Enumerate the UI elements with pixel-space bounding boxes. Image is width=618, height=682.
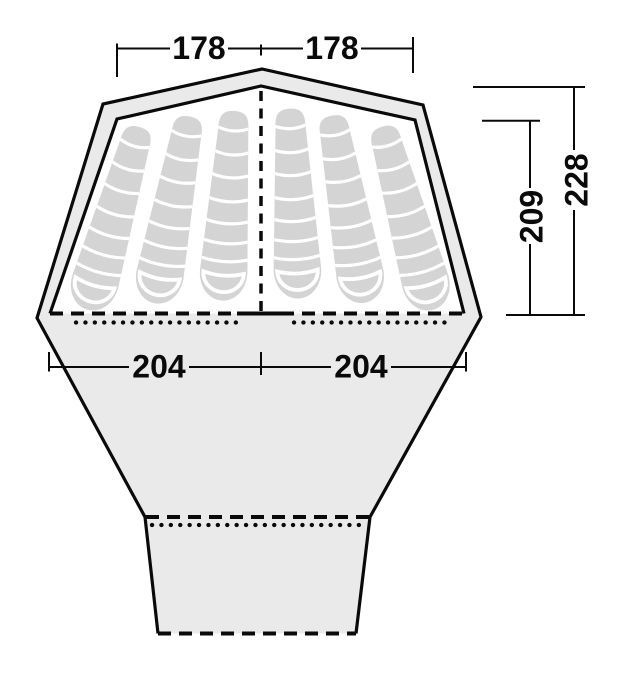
svg-text:204: 204 xyxy=(132,349,186,385)
svg-text:178: 178 xyxy=(305,30,358,66)
svg-text:228: 228 xyxy=(559,153,595,206)
svg-text:204: 204 xyxy=(334,349,388,385)
svg-text:178: 178 xyxy=(172,30,225,66)
svg-text:209: 209 xyxy=(514,190,550,243)
